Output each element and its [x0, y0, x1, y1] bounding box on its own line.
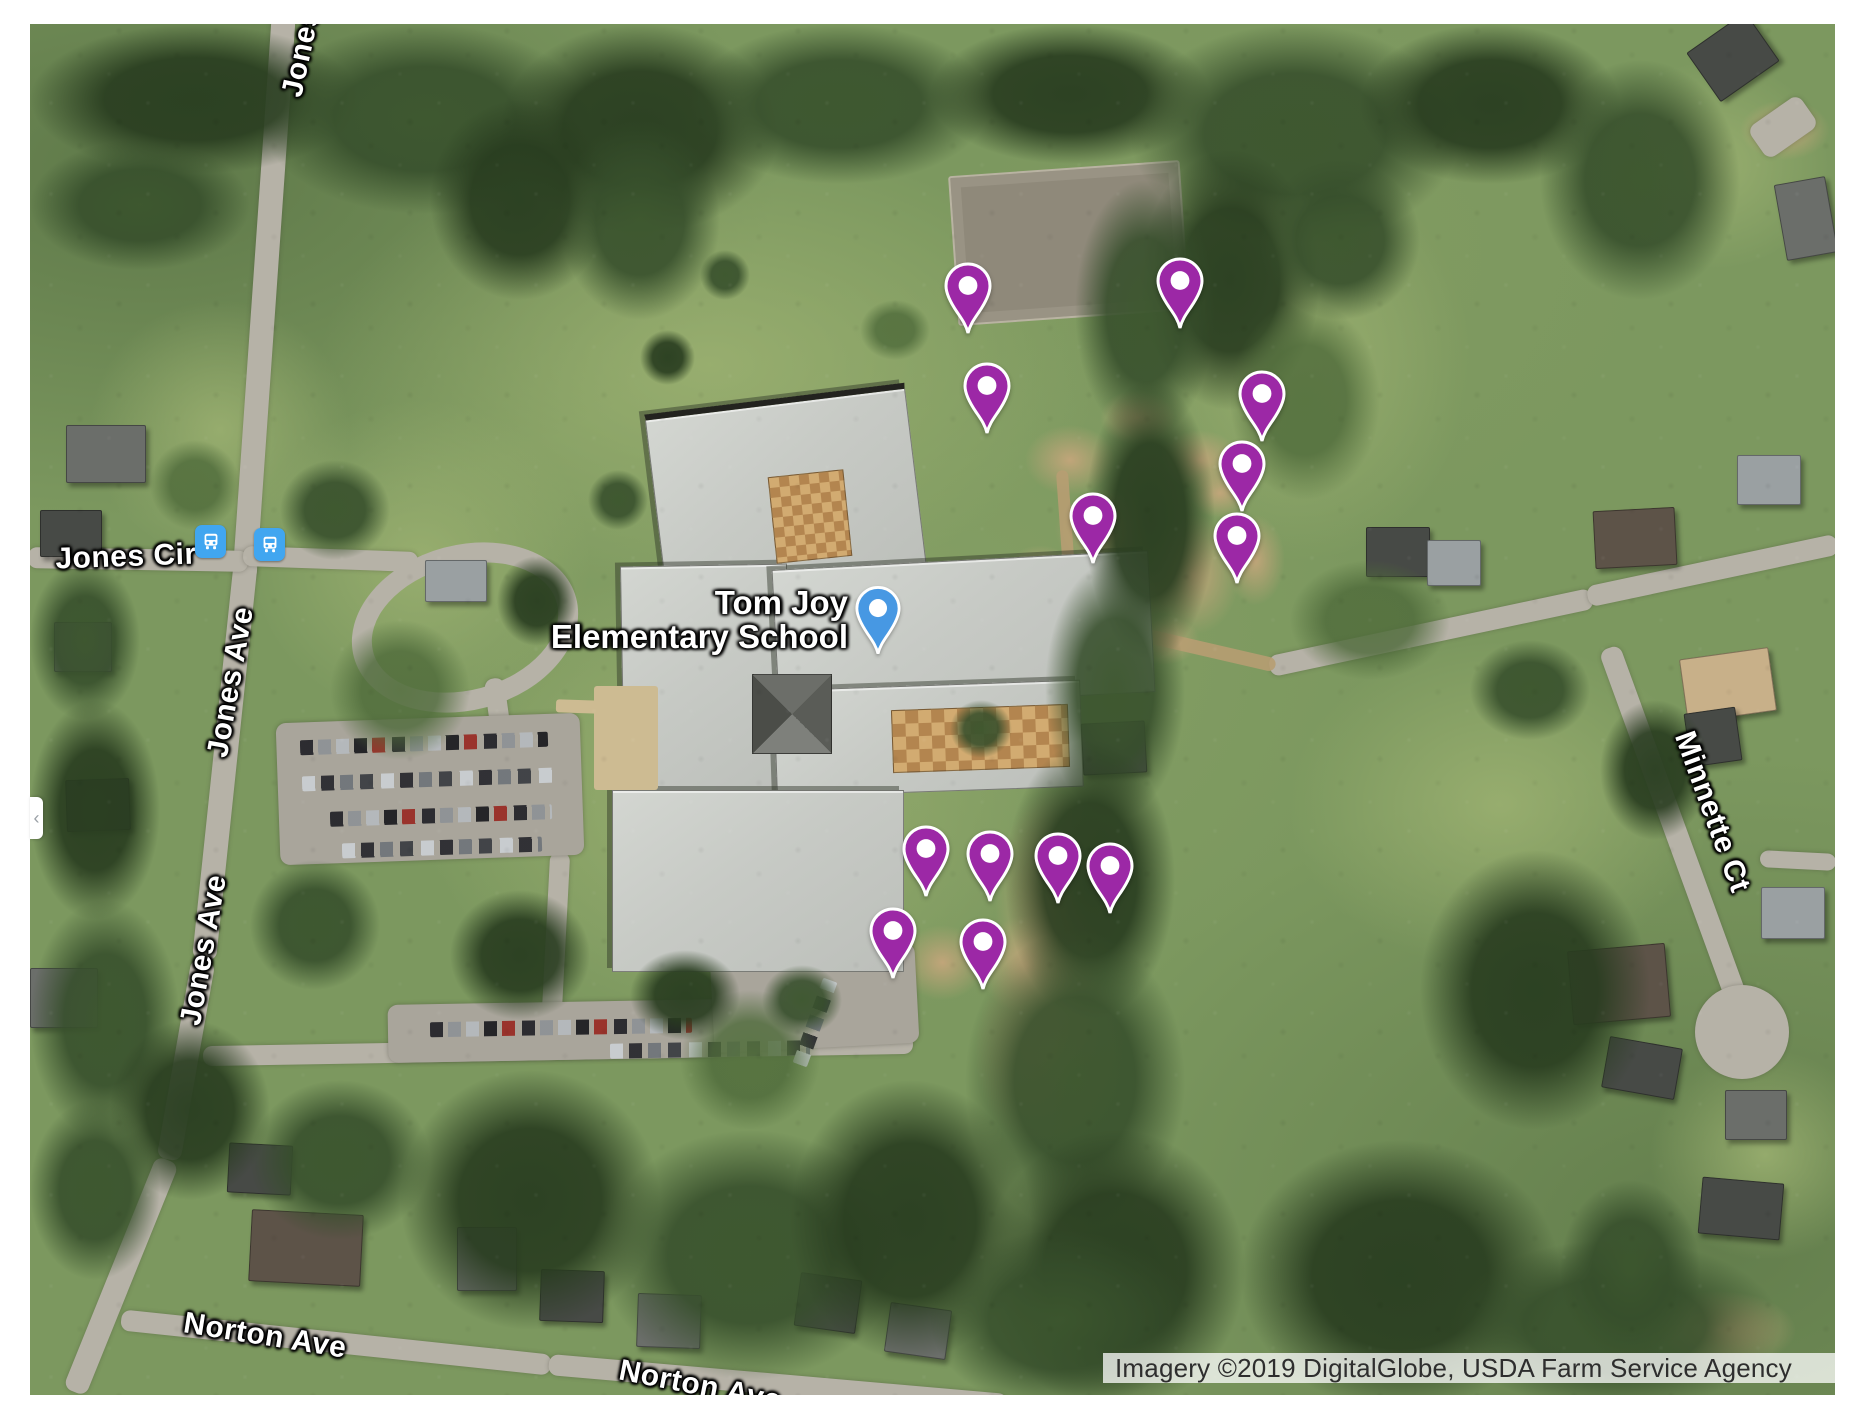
purple-pin-icon-13[interactable] [959, 918, 1007, 994]
purple-pin-icon-5[interactable] [1218, 440, 1266, 516]
bus-stop-icon-2[interactable] [254, 528, 285, 561]
purple-pin-icon-9[interactable] [966, 830, 1014, 906]
school-poi-pin-icon[interactable] [855, 586, 901, 659]
purple-pin-icon-1[interactable] [944, 262, 992, 338]
side-panel-collapse-tab[interactable]: ‹ [30, 797, 43, 839]
purple-pin-icon-6[interactable] [1069, 492, 1117, 568]
purple-pin-icon-10[interactable] [1034, 832, 1082, 908]
purple-pin-icon-7[interactable] [1213, 512, 1261, 588]
imagery-attribution: Imagery ©2019 DigitalGlobe, USDA Farm Se… [1103, 1353, 1835, 1383]
purple-pin-icon-2[interactable] [1156, 257, 1204, 333]
purple-pin-icon-3[interactable] [963, 362, 1011, 438]
purple-pin-icon-8[interactable] [902, 825, 950, 901]
purple-pin-icon-4[interactable] [1238, 370, 1286, 446]
map-frame-top [0, 0, 1869, 24]
chevron-left-icon: ‹ [34, 808, 40, 829]
map-frame-bottom [0, 1395, 1869, 1413]
map-frame-right [1835, 0, 1869, 1413]
attribution-text: Imagery ©2019 DigitalGlobe, USDA Farm Se… [1115, 1353, 1792, 1384]
google-maps-window: Jones AveJones CirJones AveJones AveNort… [0, 0, 1869, 1413]
map-canvas[interactable]: Jones AveJones CirJones AveJones AveNort… [0, 0, 1869, 1413]
map-frame-left [0, 0, 30, 1413]
purple-pin-icon-11[interactable] [1086, 842, 1134, 918]
bus-stop-icon-1[interactable] [195, 525, 226, 558]
purple-pin-icon-12[interactable] [869, 907, 917, 983]
marker-layer [0, 0, 1869, 1413]
